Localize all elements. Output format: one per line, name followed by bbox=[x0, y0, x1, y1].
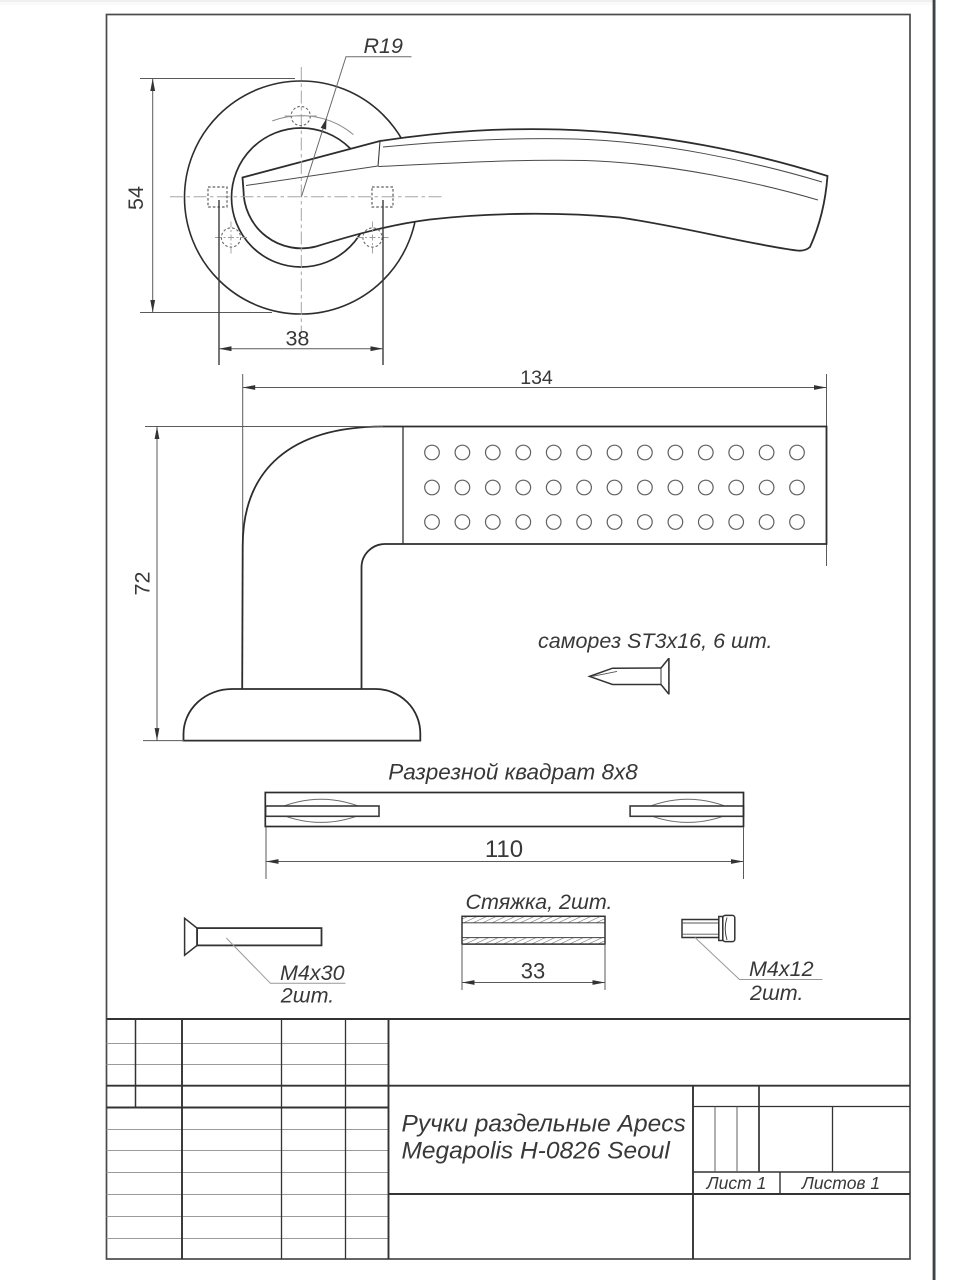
svg-text:М4х12: М4х12 bbox=[749, 957, 814, 981]
svg-text:72: 72 bbox=[130, 572, 154, 596]
svg-text:110: 110 bbox=[485, 836, 523, 863]
svg-text:Стяжка, 2шт.: Стяжка, 2шт. bbox=[466, 890, 613, 914]
svg-text:саморез SТ3х16, 6 шт.: саморез SТ3х16, 6 шт. bbox=[538, 629, 773, 653]
svg-text:2шт.: 2шт. bbox=[749, 981, 803, 1005]
svg-text:54: 54 bbox=[124, 186, 148, 210]
svg-text:Ручки раздельные Apecs: Ручки раздельные Apecs bbox=[402, 1111, 686, 1138]
svg-text:33: 33 bbox=[521, 959, 545, 984]
svg-text:Megapolis H-0826 Seoul: Megapolis H-0826 Seoul bbox=[402, 1138, 671, 1165]
svg-text:134: 134 bbox=[520, 367, 553, 389]
svg-text:Листов 1: Листов 1 bbox=[801, 1173, 880, 1193]
svg-text:R19: R19 bbox=[364, 34, 403, 58]
svg-text:2шт.: 2шт. bbox=[280, 984, 334, 1008]
svg-text:Лист 1: Лист 1 bbox=[706, 1173, 767, 1193]
svg-text:М4х30: М4х30 bbox=[280, 961, 345, 985]
svg-text:38: 38 bbox=[285, 327, 309, 351]
svg-text:Разрезной квадрат 8х8: Разрезной квадрат 8х8 bbox=[388, 760, 638, 785]
